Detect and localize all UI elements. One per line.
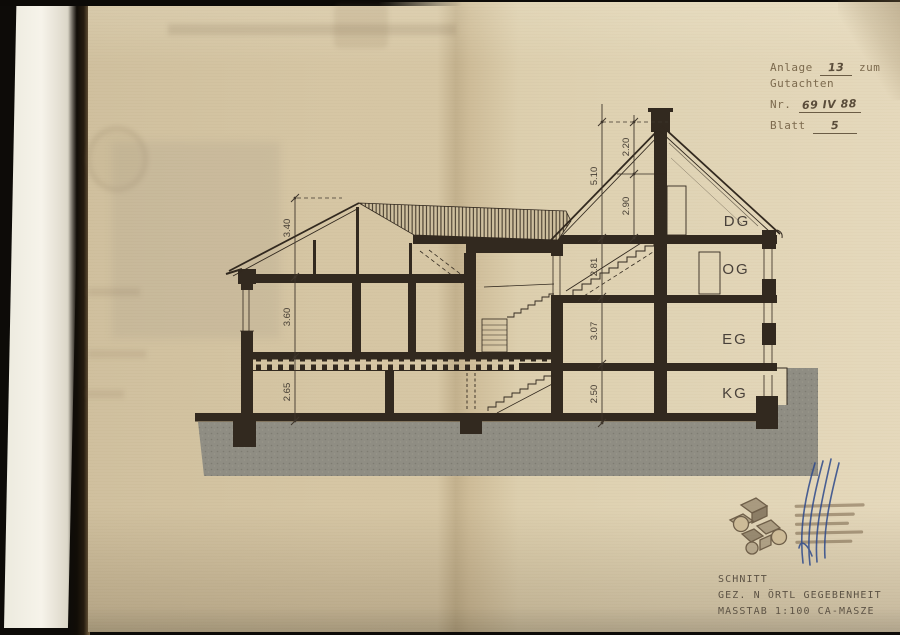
floor-label: EG — [722, 331, 748, 348]
floor-label: OG — [722, 261, 749, 278]
nr-number: 69 IV 88 — [799, 97, 861, 113]
dimension-label: 2.90 — [621, 197, 632, 216]
stamp-logo-icon — [730, 498, 787, 554]
dimension-label: 3.60 — [282, 308, 293, 327]
title-line-masstab: MASSTAB 1:100 CA-MASZE — [718, 604, 882, 620]
dimension-label: 5.10 — [589, 167, 600, 186]
staircase — [482, 236, 660, 413]
anlage-row: Anlage 13 zum — [770, 60, 896, 76]
dimension-label: 2.20 — [621, 138, 632, 157]
dimension-label: 2.81 — [589, 258, 600, 277]
blatt-label: Blatt — [770, 119, 806, 132]
annotation-block: Anlage 13 zum Gutachten Nr. 69 IV 88 Bla… — [770, 60, 896, 134]
anlage-label: Anlage — [770, 61, 813, 74]
dimension-chains — [295, 104, 668, 423]
scanned-sheet: 3.40 3.60 2.65 5.10 2.81 3.07 2.50 2.20 … — [0, 0, 900, 635]
nr-label: Nr. — [770, 98, 791, 111]
dimension-label: 3.40 — [282, 219, 293, 238]
dimension-label: 3.07 — [589, 322, 600, 341]
dimension-label: 2.50 — [589, 385, 600, 404]
floor-label: KG — [722, 385, 748, 402]
title-block: SCHNITT GEZ. N ÖRTL GEGEBENHEIT MASSTAB … — [718, 572, 882, 620]
floor-label: DG — [724, 213, 751, 230]
nr-row: Nr. 69 IV 88 — [770, 97, 896, 113]
title-line-schnitt: SCHNITT — [718, 572, 882, 588]
title-line-gez: GEZ. N ÖRTL GEGEBENHEIT — [718, 588, 882, 604]
dimension-label: 2.65 — [282, 383, 293, 402]
section-drawing: 3.40 3.60 2.65 5.10 2.81 3.07 2.50 2.20 … — [0, 0, 900, 635]
floor-joists — [250, 359, 556, 371]
blatt-number: 5 — [813, 118, 857, 134]
zum-label: zum — [859, 61, 880, 74]
gutachten-label: Gutachten — [770, 76, 896, 91]
anlage-number: 13 — [820, 60, 852, 76]
blatt-row: Blatt 5 — [770, 118, 896, 134]
